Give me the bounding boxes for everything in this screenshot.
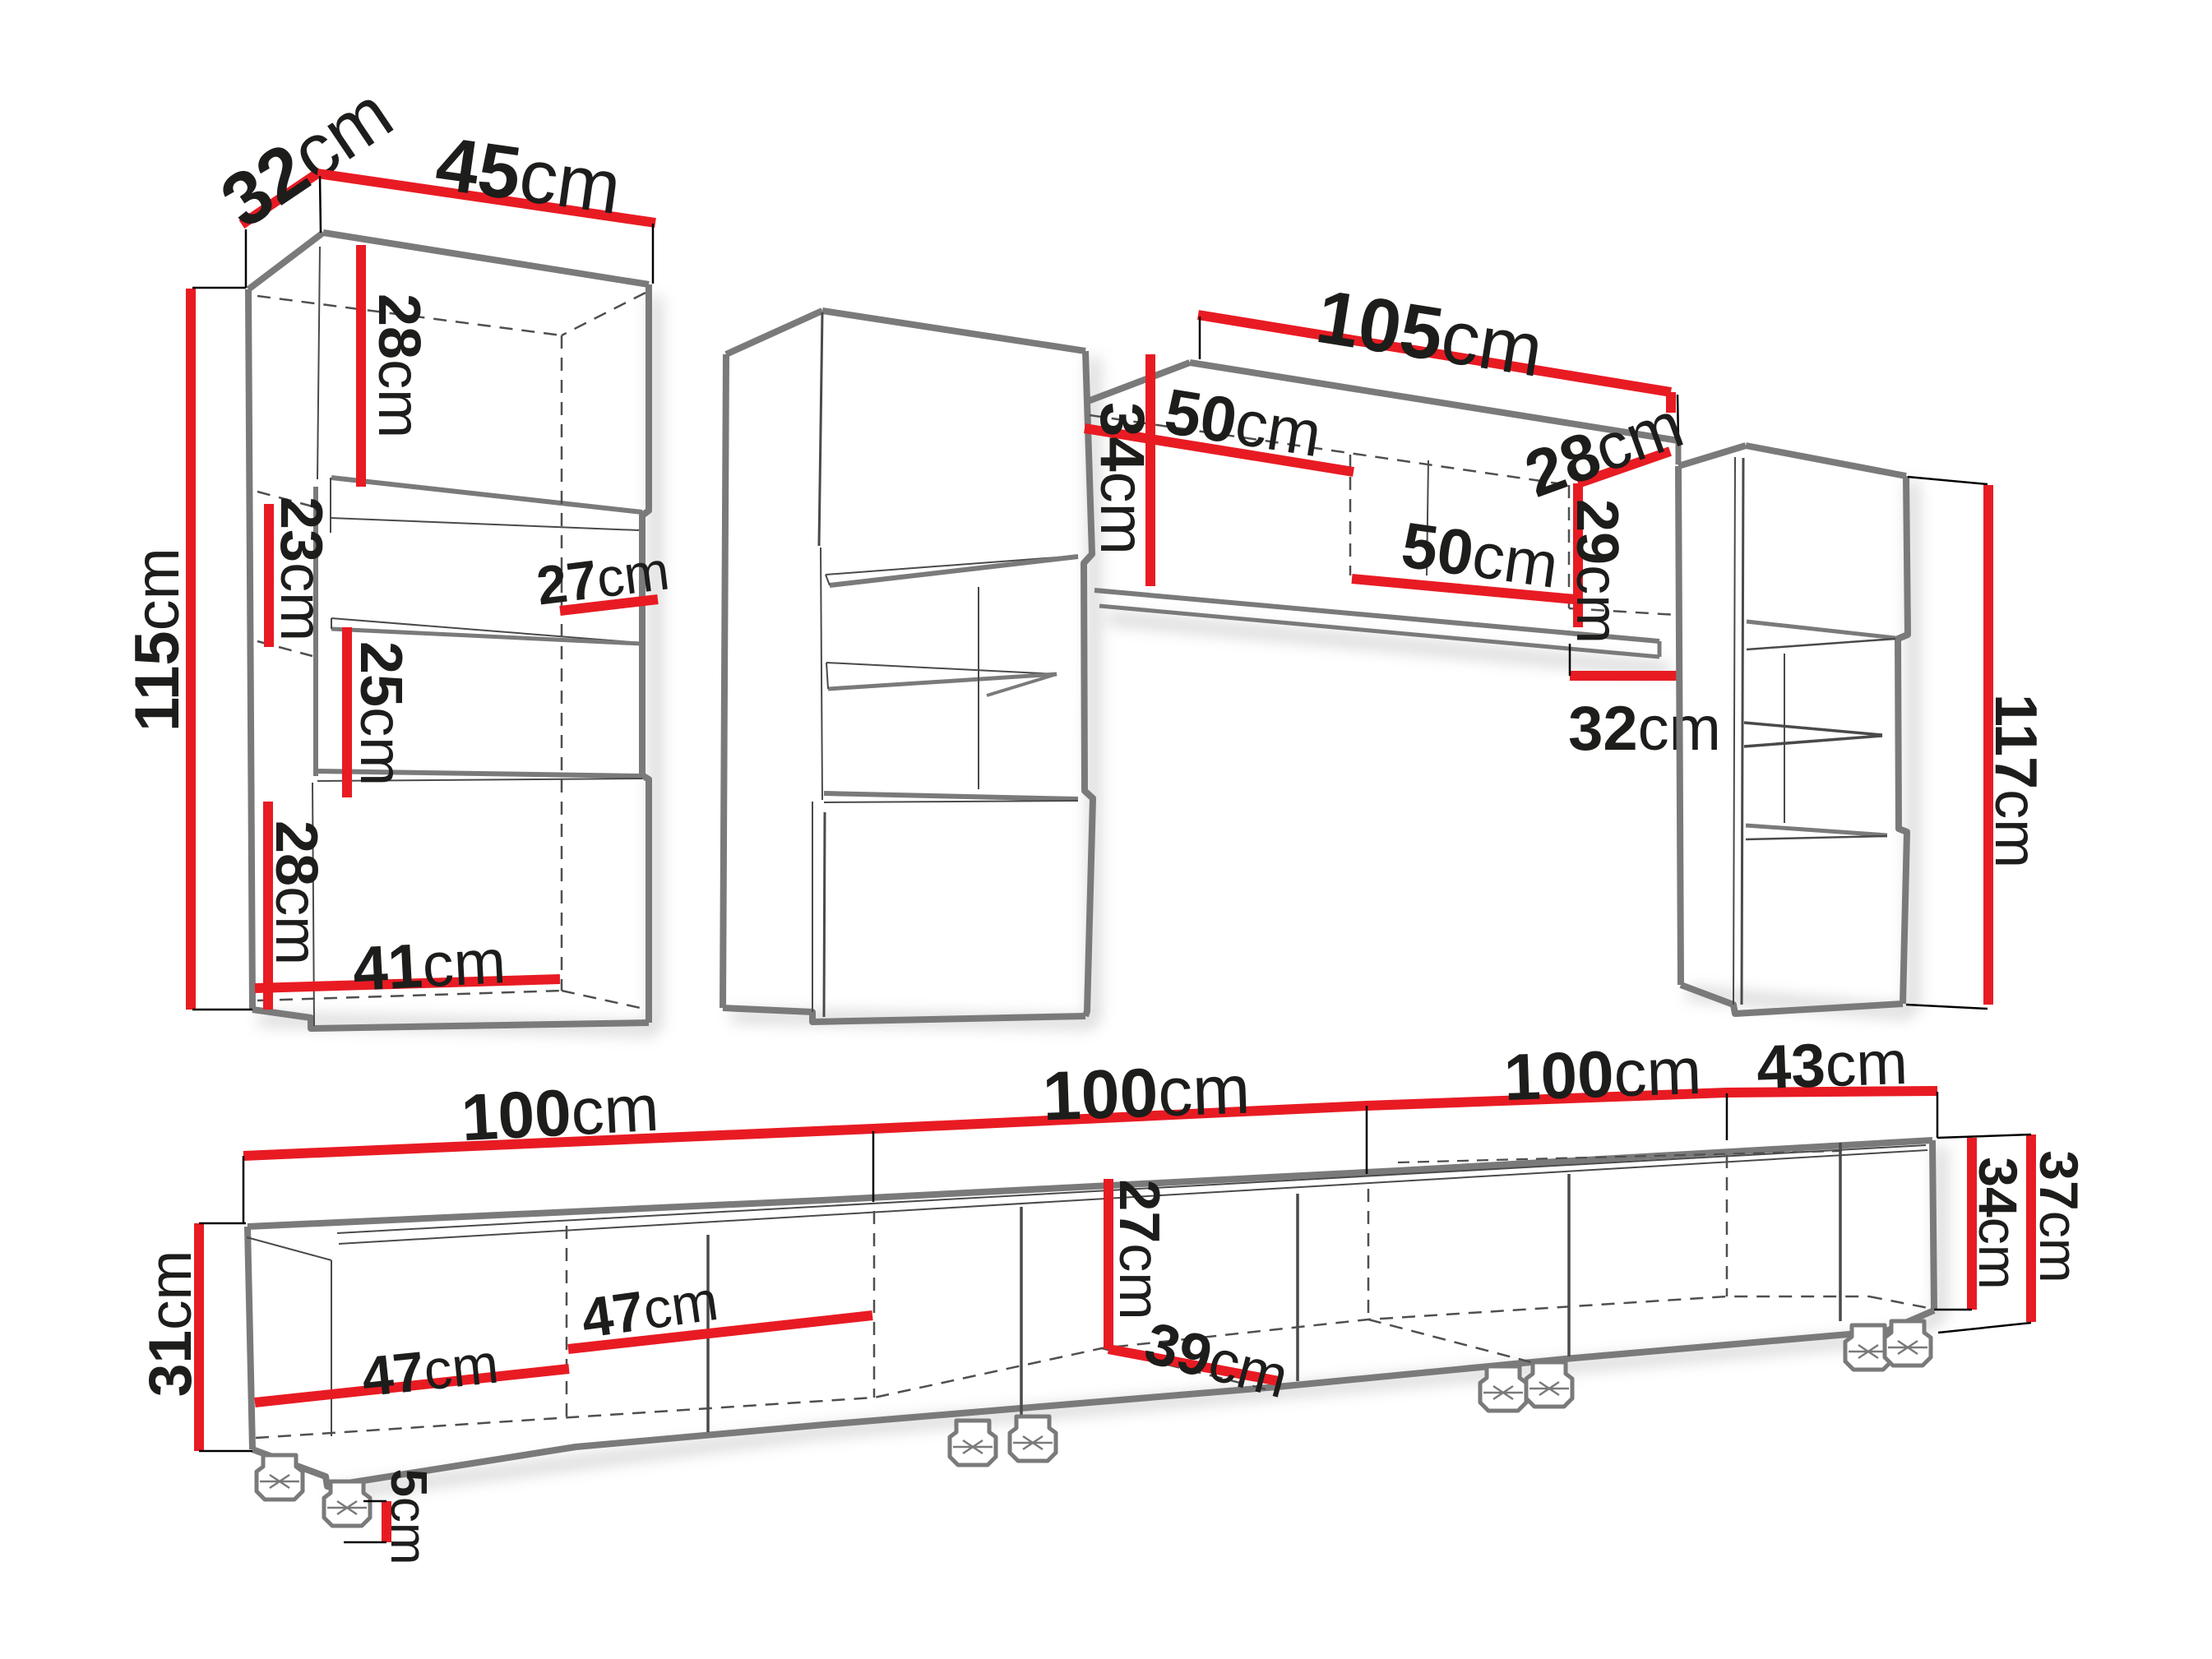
- svg-text:41cm: 41cm: [351, 927, 507, 1005]
- svg-text:31cm: 31cm: [137, 1250, 204, 1398]
- svg-text:28cm: 28cm: [263, 820, 329, 965]
- svg-text:27cm: 27cm: [1108, 1179, 1172, 1319]
- svg-text:100cm: 100cm: [1503, 1034, 1703, 1114]
- svg-text:28cm: 28cm: [366, 293, 432, 438]
- svg-text:37cm: 37cm: [2029, 1150, 2089, 1282]
- svg-text:115cm: 115cm: [123, 548, 192, 732]
- svg-text:100cm: 100cm: [460, 1071, 660, 1154]
- svg-text:29cm: 29cm: [1564, 499, 1630, 644]
- svg-text:34cm: 34cm: [1087, 402, 1157, 555]
- svg-text:34cm: 34cm: [1968, 1157, 2029, 1289]
- svg-text:117cm: 117cm: [1983, 694, 2048, 868]
- svg-text:32cm: 32cm: [1568, 694, 1721, 764]
- svg-text:100cm: 100cm: [1041, 1051, 1251, 1135]
- svg-text:25cm: 25cm: [348, 641, 414, 786]
- svg-text:5cm: 5cm: [380, 1468, 437, 1564]
- svg-text:43cm: 43cm: [1756, 1028, 1909, 1102]
- svg-text:23cm: 23cm: [268, 497, 334, 641]
